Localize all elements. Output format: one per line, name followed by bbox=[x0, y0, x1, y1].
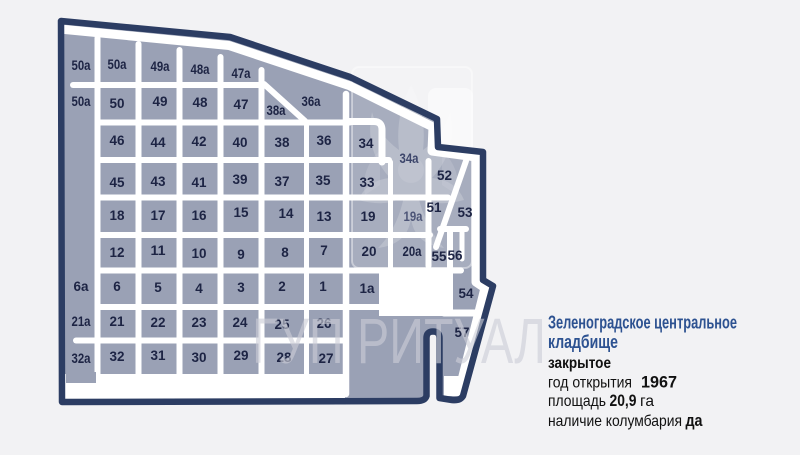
svg-text:7: 7 bbox=[320, 242, 328, 258]
svg-text:33: 33 bbox=[360, 174, 375, 190]
svg-text:41: 41 bbox=[192, 174, 207, 190]
svg-text:21а: 21а bbox=[72, 313, 91, 329]
svg-text:1: 1 bbox=[319, 278, 327, 294]
svg-text:закрытое: закрытое bbox=[548, 355, 611, 372]
svg-text:ГУП РИТУАЛ: ГУП РИТУАЛ bbox=[252, 305, 546, 377]
svg-text:19: 19 bbox=[361, 208, 376, 224]
svg-text:43: 43 bbox=[151, 173, 166, 189]
svg-text:32а: 32а bbox=[72, 350, 91, 366]
svg-text:49а: 49а bbox=[151, 58, 170, 74]
svg-text:6а: 6а bbox=[74, 278, 89, 294]
svg-text:11: 11 bbox=[151, 242, 166, 258]
svg-text:16: 16 bbox=[192, 207, 207, 223]
svg-text:38: 38 bbox=[275, 134, 290, 150]
svg-text:50а: 50а bbox=[72, 57, 91, 73]
svg-text:40: 40 bbox=[233, 134, 248, 150]
svg-text:Зеленоградское центральное: Зеленоградское центральное bbox=[548, 313, 737, 333]
svg-text:наличие колумбария: наличие колумбария bbox=[548, 413, 682, 430]
svg-text:51: 51 bbox=[427, 199, 442, 215]
svg-text:15: 15 bbox=[234, 204, 249, 220]
svg-text:47: 47 bbox=[234, 96, 249, 112]
svg-text:48: 48 bbox=[193, 94, 208, 110]
svg-text:20а: 20а bbox=[403, 243, 422, 259]
svg-text:35: 35 bbox=[316, 172, 331, 188]
svg-text:39: 39 bbox=[233, 171, 248, 187]
svg-text:45: 45 bbox=[110, 174, 125, 190]
svg-text:52: 52 bbox=[437, 167, 452, 183]
svg-text:8: 8 bbox=[281, 244, 289, 260]
svg-text:49: 49 bbox=[153, 93, 168, 109]
svg-text:22: 22 bbox=[151, 314, 166, 330]
svg-text:30: 30 bbox=[192, 349, 207, 365]
svg-text:2: 2 bbox=[278, 278, 286, 294]
svg-text:5: 5 bbox=[154, 279, 162, 295]
svg-text:21: 21 bbox=[110, 313, 125, 329]
svg-text:год открытия: год открытия bbox=[548, 375, 632, 392]
svg-text:24: 24 bbox=[233, 314, 248, 330]
svg-text:1а: 1а bbox=[360, 280, 375, 296]
svg-text:20,9: 20,9 bbox=[610, 391, 637, 410]
svg-text:17: 17 bbox=[151, 207, 166, 223]
svg-text:20: 20 bbox=[362, 243, 377, 259]
svg-text:14: 14 bbox=[279, 205, 294, 221]
svg-text:34а: 34а bbox=[400, 150, 419, 166]
svg-text:55: 55 bbox=[432, 248, 447, 264]
svg-text:13: 13 bbox=[317, 208, 332, 224]
svg-text:53: 53 bbox=[458, 204, 473, 220]
svg-text:50а: 50а bbox=[108, 56, 127, 72]
svg-text:47а: 47а bbox=[232, 65, 251, 81]
svg-text:29: 29 bbox=[234, 347, 249, 363]
svg-text:32: 32 bbox=[110, 348, 125, 364]
svg-text:19а: 19а bbox=[404, 208, 423, 224]
svg-text:12: 12 bbox=[110, 244, 125, 260]
svg-text:48а: 48а bbox=[191, 61, 210, 77]
svg-text:3: 3 bbox=[237, 279, 245, 295]
svg-text:18: 18 bbox=[110, 207, 125, 223]
svg-text:36а: 36а bbox=[302, 93, 321, 109]
svg-text:37: 37 bbox=[275, 173, 290, 189]
svg-text:36: 36 bbox=[317, 132, 332, 148]
svg-text:да: да bbox=[686, 411, 703, 430]
svg-text:4: 4 bbox=[195, 280, 203, 296]
svg-text:50а: 50а bbox=[72, 93, 91, 109]
svg-text:23: 23 bbox=[192, 314, 207, 330]
svg-text:1967: 1967 bbox=[641, 373, 677, 392]
svg-text:9: 9 bbox=[237, 246, 245, 262]
svg-text:34: 34 bbox=[359, 135, 374, 151]
svg-text:10: 10 bbox=[192, 245, 207, 261]
svg-text:га: га bbox=[640, 393, 654, 410]
svg-text:56: 56 bbox=[448, 247, 463, 263]
svg-text:6: 6 bbox=[113, 278, 121, 294]
svg-text:46: 46 bbox=[110, 132, 125, 148]
svg-text:38а: 38а bbox=[267, 102, 286, 118]
svg-text:50: 50 bbox=[110, 95, 125, 111]
svg-text:42: 42 bbox=[192, 133, 207, 149]
svg-text:кладбище: кладбище bbox=[548, 332, 618, 352]
svg-text:31: 31 bbox=[151, 347, 166, 363]
svg-text:площадь: площадь bbox=[548, 393, 606, 410]
svg-text:54: 54 bbox=[459, 285, 474, 301]
svg-text:44: 44 bbox=[151, 134, 166, 150]
